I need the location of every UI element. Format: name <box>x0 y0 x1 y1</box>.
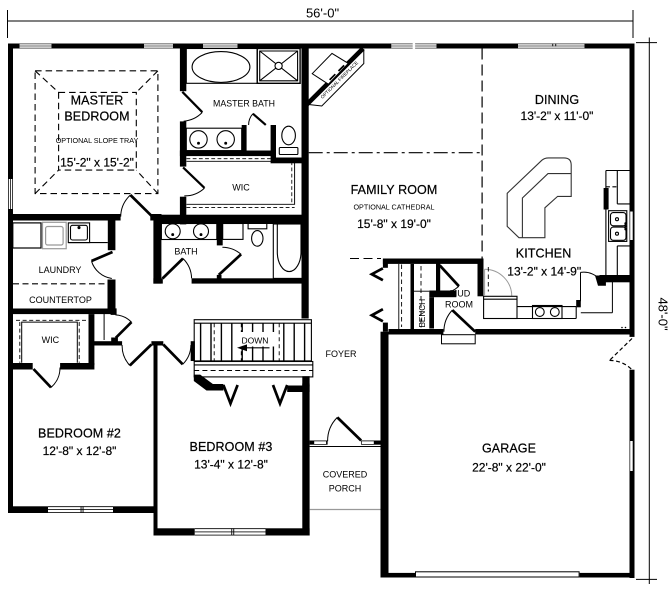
svg-text:BATH: BATH <box>174 247 197 257</box>
svg-text:OPTIONAL SLOPE TRAY: OPTIONAL SLOPE TRAY <box>56 136 139 145</box>
svg-text:COUNTERTOP: COUNTERTOP <box>29 295 92 305</box>
svg-text:DINING: DINING <box>535 93 579 107</box>
svg-text:BENCH: BENCH <box>418 299 427 328</box>
svg-text:KITCHEN: KITCHEN <box>516 246 572 260</box>
svg-text:LAUNDRY: LAUNDRY <box>39 265 82 275</box>
svg-text:22'-8" x 22'-0": 22'-8" x 22'-0" <box>472 461 546 475</box>
svg-text:OPTIONAL CATHEDRAL: OPTIONAL CATHEDRAL <box>353 203 434 212</box>
svg-text:COVERED: COVERED <box>323 470 368 480</box>
svg-text:FAMILY ROOM: FAMILY ROOM <box>351 183 438 197</box>
svg-text:MASTER: MASTER <box>71 94 124 108</box>
svg-text:WIC: WIC <box>42 335 60 345</box>
svg-text:56'-0": 56'-0" <box>306 5 340 20</box>
svg-text:BEDROOM #3: BEDROOM #3 <box>190 440 273 454</box>
svg-text:GARAGE: GARAGE <box>482 442 536 456</box>
svg-text:BEDROOM: BEDROOM <box>64 110 129 124</box>
svg-text:DOWN: DOWN <box>242 335 269 345</box>
svg-text:MASTER BATH: MASTER BATH <box>213 99 275 109</box>
svg-text:ROOM: ROOM <box>445 300 473 310</box>
svg-text:12'-8" x 12'-8": 12'-8" x 12'-8" <box>43 444 117 458</box>
svg-text:13'-2" x 11'-0": 13'-2" x 11'-0" <box>521 109 594 123</box>
svg-text:FOYER: FOYER <box>325 349 357 359</box>
svg-text:13'-2" x 14'-9": 13'-2" x 14'-9" <box>507 265 581 279</box>
svg-text:13'-4" x 12'-8": 13'-4" x 12'-8" <box>194 458 268 472</box>
svg-text:MUD: MUD <box>450 289 471 299</box>
svg-text:15'-2" x 15'-2": 15'-2" x 15'-2" <box>60 156 134 170</box>
svg-text:PORCH: PORCH <box>329 484 362 494</box>
svg-text:BEDROOM #2: BEDROOM #2 <box>38 427 121 441</box>
svg-text:15'-8" x 19'-0": 15'-8" x 19'-0" <box>357 217 431 231</box>
svg-text:48'-0": 48'-0" <box>656 297 671 331</box>
svg-text:WIC: WIC <box>232 183 250 193</box>
